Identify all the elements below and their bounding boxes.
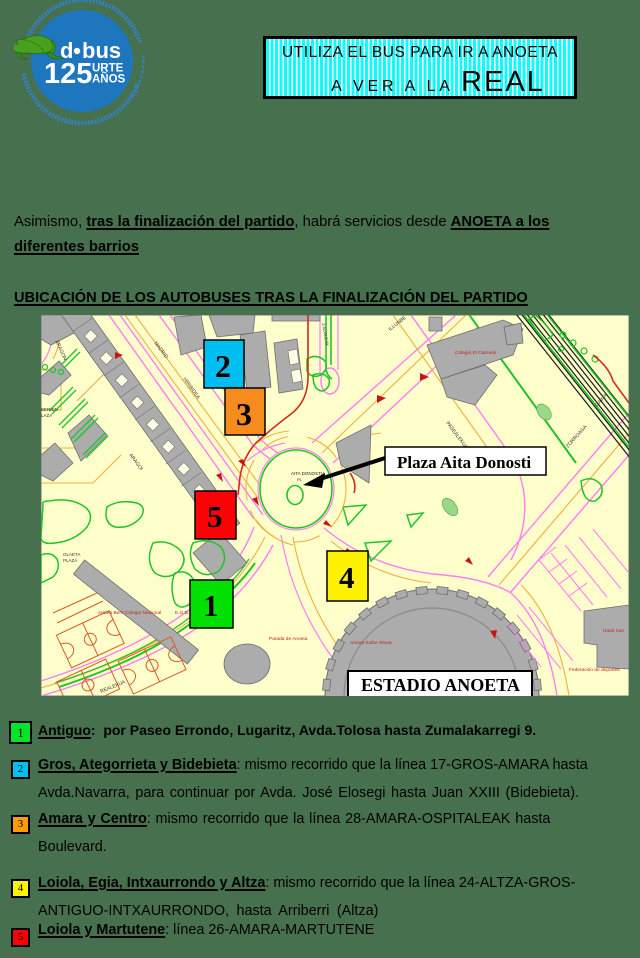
svg-text:125: 125 [44, 58, 92, 90]
svg-text:PL: PL [297, 477, 303, 482]
svg-text:Amara Kultur Etxea: Amara Kultur Etxea [350, 640, 392, 646]
svg-text:4: 4 [339, 560, 355, 595]
svg-text:5: 5 [207, 499, 223, 534]
svg-text:E.G.B.: E.G.B. [175, 610, 189, 616]
svg-text:Plaza Aita Donosti: Plaza Aita Donosti [397, 453, 531, 472]
svg-text:ESTADIO ANOETA: ESTADIO ANOETA [361, 675, 520, 695]
svg-text:1: 1 [203, 588, 219, 623]
svg-text:Federación de deportes: Federación de deportes [569, 667, 620, 673]
svg-text:AITA DONOSTIA: AITA DONOSTIA [291, 471, 325, 476]
svg-text:Hotel Xan: Hotel Xan [603, 628, 624, 634]
svg-text:Colegio El Carmelo: Colegio El Carmelo [455, 350, 497, 356]
svg-text:Amara Berri Colegio Nacional: Amara Berri Colegio Nacional [98, 610, 161, 616]
svg-text:PLAZA: PLAZA [63, 558, 77, 563]
svg-text:BERIEN: BERIEN [41, 407, 58, 412]
svg-text:AÑOS: AÑOS [92, 73, 126, 86]
svg-text:3: 3 [236, 396, 252, 432]
svg-text:LAZA: LAZA [41, 413, 52, 418]
svg-text:2: 2 [215, 348, 231, 384]
svg-text:OLAETA: OLAETA [63, 552, 80, 557]
svg-text:Parada de Anoeta: Parada de Anoeta [269, 636, 308, 642]
